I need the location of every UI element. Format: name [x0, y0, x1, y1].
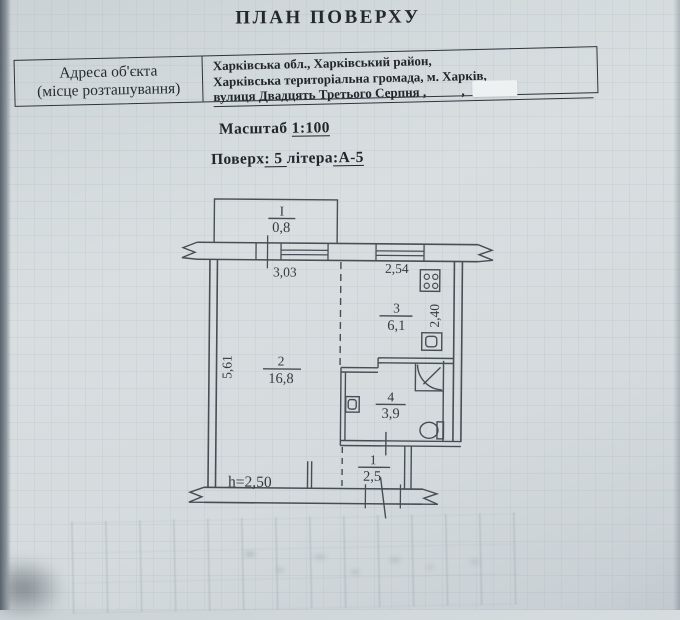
dim-wall-right: 2,40	[427, 304, 442, 328]
exterior-wall-left	[208, 259, 217, 487]
entry-door-mark	[380, 477, 386, 518]
room4-number: 4	[387, 389, 394, 404]
room1-number: 1	[370, 452, 377, 467]
window-right-icon	[376, 244, 424, 261]
balcony-number: I	[280, 203, 285, 218]
bathroom-bottom-wall	[340, 441, 461, 447]
room2-area: 16,8	[268, 371, 294, 387]
corner-bath-icon	[415, 363, 443, 391]
window-left-icon	[281, 243, 328, 260]
scanned-floor-plan-document: { "document": { "title": "ПЛАН ПОВЕРХУ",…	[0, 0, 680, 610]
wall-break-bottom-left-icon	[189, 487, 204, 502]
dim-window-left: 3,03	[273, 264, 297, 279]
page-right-edge-shadow	[673, 0, 680, 610]
dashed-partition-upper	[340, 262, 341, 366]
toilet-icon	[420, 422, 444, 439]
wall-break-top-left-icon	[182, 242, 197, 259]
room4-area: 3,9	[381, 406, 399, 422]
bathroom-left-wall	[340, 368, 345, 446]
room2-number: 2	[278, 353, 285, 368]
stub-wall	[307, 461, 311, 488]
room3-area: 6,1	[387, 318, 405, 334]
dim-wall-left: 5,61	[219, 355, 234, 379]
stove-icon	[420, 270, 440, 292]
exterior-wall-right	[453, 261, 463, 442]
room1-area: 2,5	[363, 469, 381, 485]
wall-break-bottom-right-icon	[423, 489, 438, 504]
ghost-text-artifact	[225, 532, 555, 594]
room3-number: 3	[393, 300, 400, 315]
dim-window-right: 2,54	[385, 261, 409, 276]
wall-break-top-right-icon	[478, 245, 493, 262]
hallway-right-wall	[404, 446, 411, 489]
balcony-area: 0,8	[272, 220, 290, 236]
ceiling-height-note: h=2,50	[228, 474, 272, 491]
page-left-edge-shadow	[0, 0, 11, 610]
sink-icon	[422, 333, 442, 351]
exterior-wall-top	[197, 242, 478, 261]
washbasin-icon	[346, 397, 360, 413]
